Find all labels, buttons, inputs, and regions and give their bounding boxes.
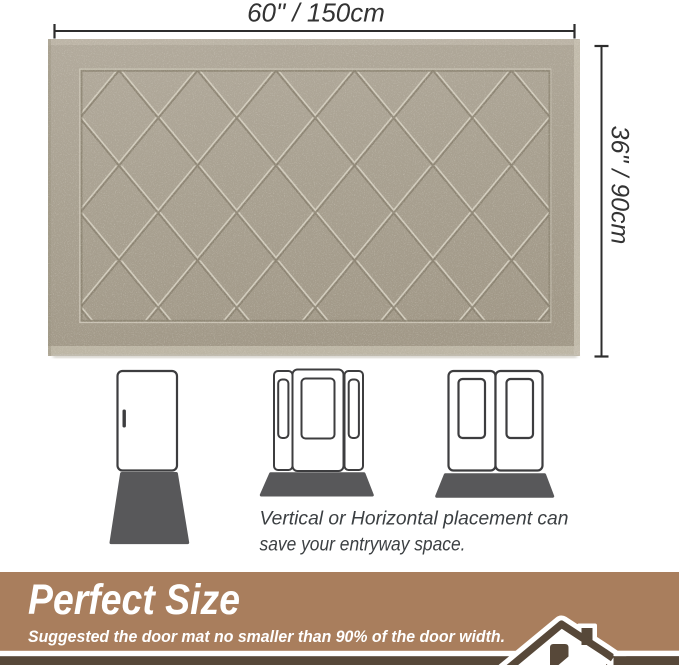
- svg-text:Vertical or Horizontal placeme: Vertical or Horizontal placement can: [260, 509, 569, 530]
- svg-text:Suggested the door mat no smal: Suggested the door mat no smaller than 9…: [28, 627, 505, 646]
- svg-text:save your entryway space.: save your entryway space.: [260, 535, 466, 556]
- svg-text:36" / 90cm: 36" / 90cm: [606, 126, 634, 245]
- svg-text:Perfect Size: Perfect Size: [28, 576, 240, 624]
- svg-text:60" / 150cm: 60" / 150cm: [247, 0, 385, 28]
